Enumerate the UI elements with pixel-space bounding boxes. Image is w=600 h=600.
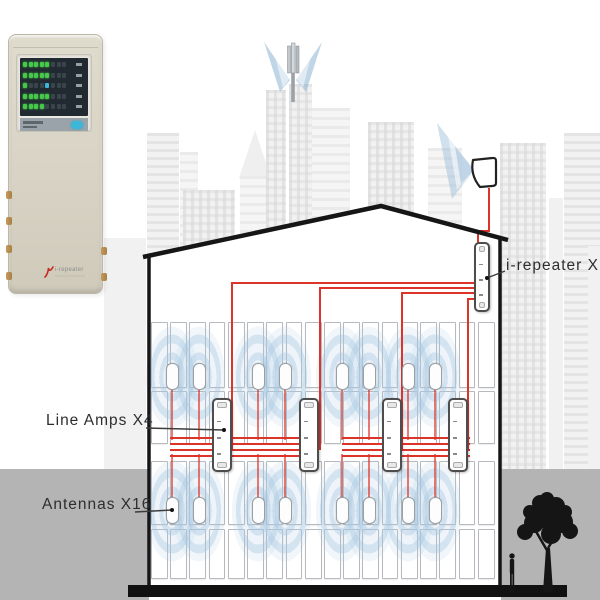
- led-dot: [29, 104, 33, 109]
- led-dot: [51, 83, 55, 88]
- led-dot: [57, 94, 61, 99]
- led-dot: [51, 104, 55, 109]
- label-line-amps: Line Amps X4: [46, 412, 154, 430]
- connector-nub: [6, 245, 12, 253]
- led-dot: [45, 83, 49, 88]
- label-i-repeater: i-repeater X1: [506, 257, 600, 275]
- led-dot: [40, 104, 44, 109]
- led-dot: [57, 73, 61, 78]
- led-dot: [40, 94, 44, 99]
- led-dot: [34, 94, 38, 99]
- led-dot: [29, 73, 33, 78]
- led-dot: [34, 73, 38, 78]
- led-dot: [62, 73, 66, 78]
- led-dot: [29, 94, 33, 99]
- led-dot: [40, 62, 44, 67]
- led-dot: [62, 104, 66, 109]
- diagram-canvas: Line Amps X4 Antennas X16 i-repeater X1 …: [0, 0, 600, 600]
- led-dot: [51, 62, 55, 67]
- status-strip: [20, 118, 88, 131]
- led-dot: [45, 94, 49, 99]
- leader-dot: [170, 508, 174, 512]
- connector-nub: [101, 247, 107, 255]
- led-dot: [29, 83, 33, 88]
- led-dot: [51, 73, 55, 78]
- led-dot: [34, 104, 38, 109]
- led-row-label: [76, 63, 82, 66]
- cabinet-seam: [13, 47, 98, 48]
- led-dot: [23, 94, 27, 99]
- connector-nub: [6, 217, 12, 225]
- connector-nub: [101, 273, 107, 281]
- repeater-device-photo: i-repeater: [8, 34, 103, 294]
- led-dot: [57, 62, 61, 67]
- led-dot: [23, 62, 27, 67]
- led-dot: [23, 73, 27, 78]
- led-row-label: [76, 105, 82, 108]
- led-dot: [40, 73, 44, 78]
- status-button: [71, 121, 83, 129]
- connector-nub: [6, 272, 12, 280]
- leader-dot: [485, 276, 489, 280]
- led-dot: [40, 83, 44, 88]
- device-screen: [16, 54, 92, 132]
- led-dot: [45, 104, 49, 109]
- led-dot: [62, 94, 66, 99]
- brand-logo: i-repeater: [43, 265, 99, 281]
- led-dot: [23, 83, 27, 88]
- led-row-label: [76, 95, 82, 98]
- status-text-bar: [23, 126, 37, 129]
- led-dot: [57, 104, 61, 109]
- led-dot: [62, 62, 66, 67]
- led-dot: [62, 83, 66, 88]
- led-dot: [45, 73, 49, 78]
- led-dot: [45, 62, 49, 67]
- led-dot: [29, 62, 33, 67]
- led-display: [20, 58, 88, 116]
- led-dot: [34, 83, 38, 88]
- leader-line: [146, 428, 224, 430]
- label-antennas: Antennas X16: [42, 496, 151, 514]
- led-row-label: [76, 74, 82, 77]
- led-dot: [23, 104, 27, 109]
- led-dot: [34, 62, 38, 67]
- status-text-bar: [23, 121, 43, 124]
- brand-text: i-repeater: [55, 267, 84, 273]
- led-row-label: [76, 84, 82, 87]
- led-dot: [57, 83, 61, 88]
- brand-subtext-bar: [55, 275, 85, 277]
- leader-line: [487, 271, 505, 278]
- logo-mark-icon: [43, 265, 55, 279]
- led-dot: [51, 94, 55, 99]
- connector-nub: [6, 191, 12, 199]
- leader-dot: [222, 428, 226, 432]
